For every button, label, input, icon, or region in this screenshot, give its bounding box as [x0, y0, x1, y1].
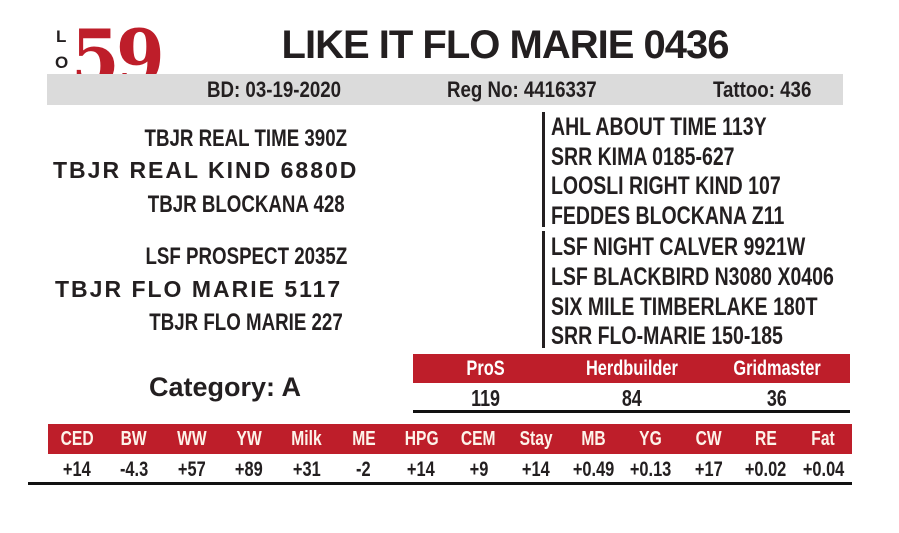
birth-date: BD: 03-19-2020: [207, 74, 365, 105]
epd-value-yw: +89: [220, 457, 277, 482]
sire-granddam: TBJR BLOCKANA 428: [56, 193, 436, 217]
tattoo: Tattoo: 436: [713, 74, 829, 105]
dam-granddam: TBJR FLO MARIE 227: [56, 311, 436, 335]
epd-header-re: RE: [737, 424, 794, 454]
epd-header-bw: BW: [105, 424, 162, 454]
epd-header-ced: CED: [48, 424, 105, 454]
index-header-gridmaster: Gridmaster: [704, 354, 850, 383]
sire-grandsire: TBJR REAL TIME 390Z: [56, 127, 436, 151]
epd-value-me: -2: [335, 457, 392, 482]
epd-value-milk: +31: [278, 457, 335, 482]
epd-header-mb: MB: [565, 424, 622, 454]
epd-header-hpg: HPG: [393, 424, 450, 454]
dam-grandsire: LSF PROSPECT 2035Z: [56, 245, 436, 269]
index-header-bar: ProS Herdbuilder Gridmaster: [413, 354, 850, 383]
index-underline: [413, 410, 850, 413]
epd-header-cw: CW: [680, 424, 737, 454]
pedigree-divider-bottom: [542, 231, 545, 348]
epd-header-fat: Fat: [794, 424, 851, 454]
epd-value-cem: +9: [450, 457, 507, 482]
epd-value-ww: +57: [163, 457, 220, 482]
category-label: Category: A: [149, 372, 301, 403]
lot-letter-o: O: [55, 54, 68, 71]
epd-value-yg: +0.13: [622, 457, 679, 482]
epd-values-row: +14 -4.3 +57 +89 +31 -2 +14 +9 +14 +0.49…: [48, 457, 852, 482]
index-header-pros: ProS: [413, 354, 559, 383]
great-grandparent-row: SRR FLO-MARIE 150-185: [551, 322, 899, 352]
epd-header-yw: YW: [220, 424, 277, 454]
epd-header-milk: Milk: [278, 424, 335, 454]
epd-value-fat: +0.04: [794, 457, 851, 482]
epd-header-ww: WW: [163, 424, 220, 454]
epd-header-yg: YG: [622, 424, 679, 454]
index-value-pros: 119: [413, 385, 559, 411]
epd-value-ced: +14: [48, 457, 105, 482]
epd-value-cw: +17: [680, 457, 737, 482]
great-grandparent-row: LOOSLI RIGHT KIND 107: [551, 172, 899, 202]
sire-name: TBJR REAL KIND 6880D: [53, 159, 358, 182]
great-grandparent-row: SRR KIMA 0185-627: [551, 143, 899, 173]
epd-value-bw: -4.3: [105, 457, 162, 482]
epd-underline: [28, 482, 852, 485]
epd-value-hpg: +14: [393, 457, 450, 482]
epd-header-cem: CEM: [450, 424, 507, 454]
index-values-row: 119 84 36: [413, 385, 850, 411]
epd-value-re: +0.02: [737, 457, 794, 482]
epd-header-me: ME: [335, 424, 392, 454]
catalog-page: L O T 59 LIKE IT FLO MARIE 0436 BD: 03-1…: [0, 0, 899, 533]
index-value-herdbuilder: 84: [559, 385, 705, 411]
great-grandparent-row: FEDDES BLOCKANA Z11: [551, 202, 899, 232]
great-grandparent-row: SIX MILE TIMBERLAKE 180T: [551, 293, 899, 323]
epd-header-stay: Stay: [507, 424, 564, 454]
great-grandparents-list: AHL ABOUT TIME 113Y SRR KIMA 0185-627 LO…: [551, 113, 899, 352]
great-grandparent-row: LSF BLACKBIRD N3080 X0406: [551, 263, 899, 293]
epd-value-mb: +0.49: [565, 457, 622, 482]
index-header-herdbuilder: Herdbuilder: [559, 354, 705, 383]
page-title: LIKE IT FLO MARIE 0436: [160, 23, 850, 68]
index-value-gridmaster: 36: [704, 385, 850, 411]
epd-value-stay: +14: [507, 457, 564, 482]
great-grandparent-row: AHL ABOUT TIME 113Y: [551, 113, 899, 143]
dam-name: TBJR FLO MARIE 5117: [55, 278, 342, 301]
reg-no: Reg No: 4416337: [447, 74, 623, 105]
pedigree-divider-top: [542, 112, 545, 227]
epd-header-row: CED BW WW YW Milk ME HPG CEM Stay MB YG …: [48, 424, 852, 454]
great-grandparent-row: LSF NIGHT CALVER 9921W: [551, 233, 899, 263]
lot-letter-l: L: [56, 28, 66, 45]
